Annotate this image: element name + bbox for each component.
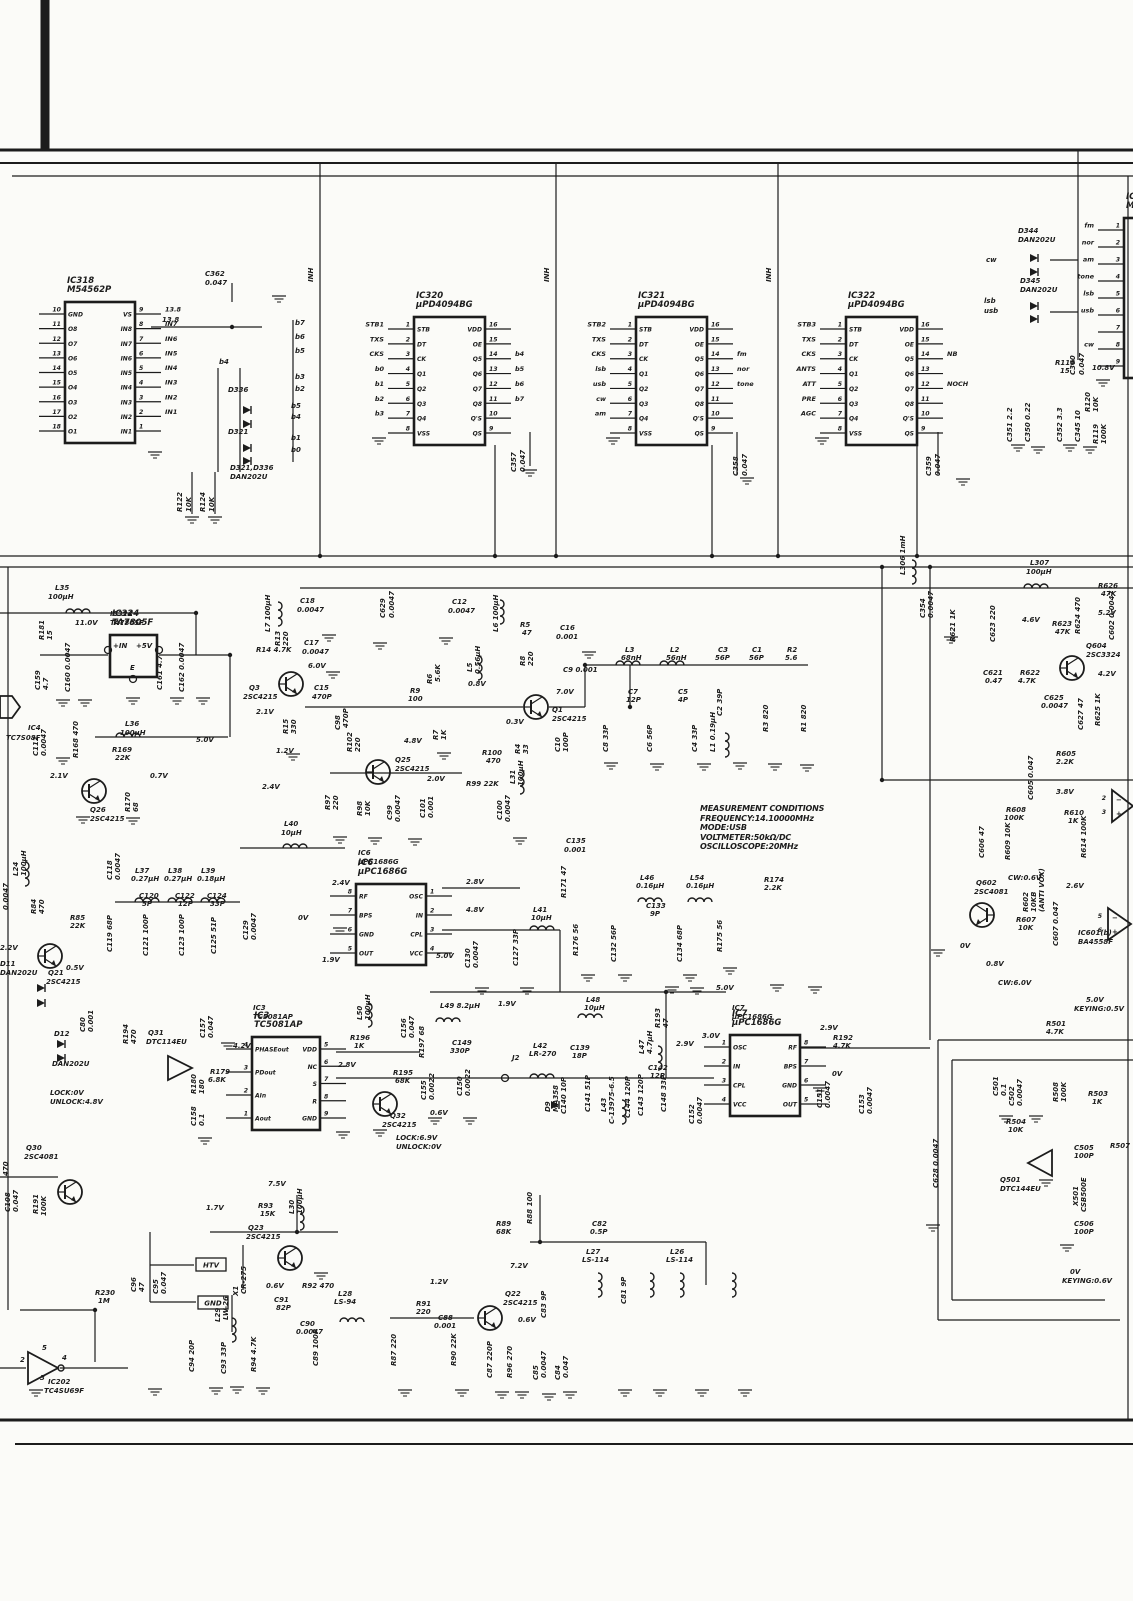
component-label: C143 120P <box>637 1073 645 1116</box>
inductor-icon <box>680 1273 684 1297</box>
component-label: 0.7V <box>150 772 168 780</box>
component-label: D11 <box>0 960 16 968</box>
component-label: 11 <box>921 396 930 403</box>
junction-dot <box>880 778 884 782</box>
component-label: lsb <box>1083 290 1094 298</box>
component-label: 16 <box>52 394 61 401</box>
component-label: C505 <box>1074 1144 1094 1152</box>
component-label: R503 <box>1088 1090 1108 1098</box>
component-label: 13 <box>489 366 498 373</box>
component-label: R5 <box>520 621 530 629</box>
component-label: 0.047 <box>519 450 527 472</box>
component-label: L48 <box>586 996 600 1004</box>
component-label: 4.7K <box>833 1042 851 1050</box>
component-label: C152 <box>688 1104 696 1124</box>
component-label: 1.9V <box>498 1000 516 1008</box>
component-label: CKS <box>802 350 817 358</box>
component-label: 1K <box>354 1042 365 1050</box>
component-label: C112 <box>32 736 40 756</box>
component-label: 0.0047 <box>250 913 258 940</box>
component-label: 4 <box>139 380 143 387</box>
component-label: 2 <box>430 908 434 915</box>
component-label: 0.1 <box>198 1113 206 1126</box>
component-label: b1 <box>291 434 301 442</box>
component-label: 0.047 <box>205 279 227 287</box>
component-label: 13 <box>711 366 720 373</box>
component-label: 56P <box>715 654 731 662</box>
component-label: Aout <box>254 1116 272 1123</box>
component-label: 4.2V <box>233 1042 251 1050</box>
component-label: C621 <box>983 669 1003 677</box>
component-label: GND <box>204 1300 222 1308</box>
component-label: R170 <box>124 792 132 812</box>
component-label: IN <box>733 1064 740 1071</box>
component-label: BA4558F <box>1078 938 1113 946</box>
note-line: FREQUENCY:14.10000MHz <box>700 814 824 824</box>
component-label: 9P <box>650 910 661 918</box>
component-label: 3 <box>139 394 143 401</box>
component-label: 16 <box>921 322 930 329</box>
component-label: C94 20P <box>188 1339 196 1372</box>
component-label: C625 <box>1044 694 1064 702</box>
component-label: IN5 <box>165 349 178 357</box>
component-label: C358 <box>732 456 740 476</box>
component-label: b7 <box>295 319 305 327</box>
junction-dot <box>915 554 919 558</box>
component-label: 330P <box>450 1047 471 1055</box>
component-label: DTC144EU <box>1000 1185 1041 1193</box>
component-label: C5 <box>678 688 688 696</box>
component-label: R90 22K <box>450 1333 458 1366</box>
component-label: µPD4094BG <box>637 300 695 310</box>
component-label: C159 <box>34 670 42 690</box>
component-label: R176 56 <box>572 924 580 956</box>
component-label: 5P <box>142 900 153 908</box>
component-label: 0.001 <box>87 1010 95 1032</box>
component-label: 100µH <box>296 1188 304 1214</box>
component-label: 47 <box>522 629 532 637</box>
component-label: C123 100P <box>178 913 186 956</box>
component-label: VDD <box>689 327 704 334</box>
component-label: R602 <box>1022 892 1030 912</box>
component-label: 6.8K <box>208 1076 226 1084</box>
component-label: R <box>312 1098 317 1105</box>
component-label: VSS <box>639 431 652 438</box>
component-label: 0.0047 <box>297 606 324 614</box>
component-label: C130 <box>464 948 472 968</box>
component-label: C91 <box>274 1296 289 1304</box>
component-label: 5 <box>1098 913 1102 920</box>
component-label: 0.0022 <box>428 1073 436 1100</box>
component-label: R92 470 <box>302 1282 334 1290</box>
junction-dot <box>554 554 558 558</box>
component-label: R120 <box>1084 392 1092 412</box>
ic-IC321-outline <box>636 317 707 445</box>
component-label: C99 <box>386 805 394 820</box>
component-label: Q4 <box>417 416 426 423</box>
component-label: 2 <box>244 1088 248 1095</box>
component-label: 7 <box>406 411 411 418</box>
component-label: C133 <box>646 902 666 910</box>
component-label: 5.0V <box>1086 996 1104 1004</box>
component-label: C158 <box>190 1106 198 1126</box>
component-label: 100µH <box>1026 568 1052 576</box>
component-label: Q6 <box>905 371 914 378</box>
component-label: R624 470 <box>1074 597 1082 634</box>
component-label: 0.0047 <box>114 853 122 880</box>
component-label: µPC1686G <box>357 858 399 866</box>
component-label: 2SC3324 <box>1086 651 1121 659</box>
component-label: C84 <box>554 1365 562 1380</box>
component-label: 14 <box>489 351 498 358</box>
component-label: OE <box>695 341 705 348</box>
note-line: MEASUREMENT CONDITIONS <box>700 804 824 814</box>
component-label: R2 <box>787 646 797 654</box>
component-label: R9 <box>410 687 420 695</box>
component-label: R625 1K <box>1094 693 1102 726</box>
component-label: Q23 <box>248 1224 264 1232</box>
component-label: NC <box>308 1064 318 1071</box>
component-label: VCC <box>733 1102 747 1109</box>
junction-dot <box>295 1230 299 1234</box>
component-label: 22K <box>115 754 131 762</box>
component-label: 5.6K <box>434 664 442 682</box>
component-label: 8 <box>324 1093 329 1100</box>
component-label: 47 <box>138 1282 146 1292</box>
component-label: R179 <box>210 1068 230 1076</box>
component-label: 2.0V <box>427 775 445 783</box>
component-label: 2SC4215 <box>90 815 125 823</box>
component-label: C149 <box>452 1039 472 1047</box>
component-label: 5.0V <box>436 952 454 960</box>
component-label: R87 220 <box>390 1334 398 1366</box>
component-label: C354 <box>919 598 927 618</box>
component-label: D345 <box>1020 277 1041 285</box>
component-label: L29 <box>214 1308 222 1322</box>
component-label: C161 4.7 <box>156 655 164 690</box>
IC4-symbol <box>0 696 20 718</box>
component-label: Q'S <box>693 416 704 423</box>
component-label: C151 <box>816 1088 824 1108</box>
component-label: 14 <box>711 351 720 358</box>
junction-dot <box>880 565 884 569</box>
component-label: D9 <box>544 1101 552 1112</box>
component-label: Q31 <box>148 1029 164 1037</box>
component-label: C10 <box>554 737 562 752</box>
component-label: C9 0.001 <box>563 666 598 674</box>
component-label: 2.4V <box>262 783 280 791</box>
component-label: R504 <box>1006 1118 1026 1126</box>
component-label: L39 <box>201 867 215 875</box>
component-label: C124 <box>207 892 227 900</box>
component-label: L36 <box>125 720 139 728</box>
component-label: MA358 <box>552 1085 560 1112</box>
component-label: Q3 <box>417 401 426 408</box>
component-label: R88 100 <box>526 1192 534 1224</box>
component-label: RF <box>359 894 369 901</box>
component-label: R608 <box>1006 806 1026 814</box>
component-label: 0V <box>832 1070 843 1078</box>
component-label: 47K <box>1055 628 1071 636</box>
diode-icon <box>1030 268 1038 276</box>
component-label: 6 <box>1116 308 1121 315</box>
component-label: R124 <box>199 492 207 512</box>
component-label: QS <box>695 431 704 438</box>
component-label: 1 <box>430 889 434 896</box>
component-label: IN6 <box>165 335 178 343</box>
component-label: RF <box>788 1045 798 1052</box>
component-label: Q21 <box>48 969 64 977</box>
component-label: VDD <box>899 327 914 334</box>
component-label: 8 <box>804 1040 809 1047</box>
component-label: R507 <box>1110 1142 1130 1150</box>
component-label: 2SC4215 <box>552 715 587 723</box>
component-label: PDout <box>255 1070 277 1077</box>
ic-IC322-outline <box>846 317 917 445</box>
component-label: 1 <box>139 424 143 431</box>
component-label: Q7 <box>473 386 483 393</box>
schematic-svg: IC318M54562P10GND11O812O713O614O515O416O… <box>0 0 1133 1601</box>
component-label: 0.0047 <box>696 1097 704 1124</box>
transistor-lead <box>373 762 384 769</box>
component-label: IN7 <box>121 341 133 348</box>
component-label: C607 0.047 <box>1052 902 1060 946</box>
component-label: M54562P <box>67 285 112 295</box>
component-label: L38 <box>168 867 182 875</box>
component-label: usb <box>593 380 606 388</box>
component-label: b7 <box>515 395 525 403</box>
component-label: 4.8V <box>466 906 484 914</box>
component-label: C606 47 <box>978 826 986 858</box>
transistor-lead <box>285 1248 296 1255</box>
component-label: IC3 <box>253 1004 266 1012</box>
component-label: 2.2K <box>1056 758 1074 766</box>
component-label: CK <box>639 356 649 363</box>
component-label: TC4SU69F <box>44 1387 84 1395</box>
component-label: fm <box>1084 222 1094 230</box>
component-label: 10 <box>52 307 61 314</box>
component-label: R174 <box>764 876 784 884</box>
component-label: 4P <box>678 696 689 704</box>
component-label: L24 <box>12 862 20 876</box>
component-label: Q4 <box>849 416 858 423</box>
component-label: C125 51P <box>210 916 218 954</box>
component-label: 2.2K <box>764 884 782 892</box>
transistor-lead <box>89 781 100 788</box>
component-label: L26 <box>670 1248 684 1256</box>
component-label: Q7 <box>905 386 915 393</box>
component-label: 0.047 <box>741 454 749 476</box>
component-label: R118 <box>1055 359 1075 367</box>
component-label: R180 <box>190 1074 198 1094</box>
component-label: b6 <box>295 333 305 341</box>
component-label: Q5 <box>905 356 914 363</box>
component-label: LS-114 <box>582 1256 609 1264</box>
component-label: X501 <box>1072 1186 1080 1207</box>
component-label: 0.0047 <box>2 883 10 910</box>
component-label: 7.2V <box>510 1262 528 1270</box>
junction-dot <box>228 653 232 657</box>
component-label: 220 <box>354 737 362 752</box>
component-label: 10K <box>1092 396 1100 412</box>
component-label: J2 <box>510 1054 520 1062</box>
component-label: Q3 <box>249 684 260 692</box>
component-label: Q25 <box>395 756 411 764</box>
diode-icon <box>243 444 251 452</box>
component-label: Q'S <box>471 416 482 423</box>
component-label: Q'S <box>903 416 914 423</box>
component-label: 10µH <box>281 829 302 837</box>
component-label: 3 <box>406 351 410 358</box>
component-label: am <box>1083 256 1094 264</box>
component-label: 4 <box>722 1097 726 1104</box>
component-label: 2 <box>139 409 143 416</box>
component-label: O5 <box>68 370 77 377</box>
component-label: 10K <box>208 496 216 512</box>
component-label: lsb <box>595 365 606 373</box>
component-label: LS-94 <box>334 1298 356 1306</box>
component-label: 220 <box>416 1308 431 1316</box>
component-label: C627 47 <box>1077 698 1085 730</box>
component-label: 0.5V <box>66 964 84 972</box>
component-label: R609 10K <box>1004 822 1012 860</box>
component-label: CK <box>417 356 427 363</box>
transistor-lead <box>1067 658 1078 665</box>
component-label: 100µH <box>48 593 74 601</box>
component-label: R168 470 <box>72 721 80 758</box>
component-label: IN3 <box>121 399 132 406</box>
component-label: DAN202U <box>1018 236 1056 244</box>
component-label: 180 <box>198 1079 206 1094</box>
component-label: D344 <box>1018 227 1039 235</box>
component-label: 4.7K <box>1018 677 1036 685</box>
component-label: C127 33P <box>512 928 520 966</box>
component-label: 2SC4081 <box>24 1153 59 1161</box>
component-label: DAN202U <box>0 969 38 977</box>
component-label: R91 <box>416 1300 431 1308</box>
component-label: C6 56P <box>646 724 654 752</box>
component-label: 0.0047 <box>472 941 480 968</box>
component-label: b5 <box>295 347 305 355</box>
component-label: IC202 <box>48 1378 70 1386</box>
component-label: R171 47 <box>560 866 568 898</box>
component-label: C501 <box>992 1076 1000 1096</box>
component-label: ATT <box>802 380 817 388</box>
component-label: 0.3V <box>506 718 524 726</box>
component-label: 0.0047 <box>1041 702 1068 710</box>
component-label: C89 100P <box>312 1328 320 1366</box>
component-label: 0V <box>960 942 971 950</box>
component-label: X1 <box>232 1286 240 1297</box>
component-label: Q604 <box>1086 642 1107 650</box>
component-label: 7 <box>804 1059 809 1066</box>
component-label: C16 <box>560 624 575 632</box>
component-label: Q2 <box>417 386 426 393</box>
component-label: 8 <box>406 426 411 433</box>
component-label: 4 <box>628 366 632 373</box>
component-label: − <box>1116 796 1122 804</box>
component-label: R230 <box>95 1289 115 1297</box>
component-label: TXS <box>370 335 384 343</box>
component-label: R195 <box>393 1069 413 1077</box>
component-label: Q7 <box>695 386 705 393</box>
component-label: C350 0.22 <box>1024 402 1032 442</box>
component-label: 8 <box>838 426 843 433</box>
component-label: OE <box>473 341 483 348</box>
component-label: 0.001 <box>564 846 586 854</box>
component-label: 2.1V <box>50 772 68 780</box>
component-label: 7 <box>838 411 843 418</box>
component-label: 2 <box>838 336 842 343</box>
component-label: +5V <box>136 642 153 650</box>
component-label: OSC <box>733 1045 747 1052</box>
component-label: Q2 <box>639 386 648 393</box>
component-label: 12 <box>921 381 930 388</box>
junction-dot <box>710 554 714 558</box>
diode-icon <box>57 1040 65 1048</box>
transistor-lead <box>286 674 297 681</box>
component-label: L306 1mH <box>899 535 907 575</box>
component-label: fm <box>737 350 747 358</box>
component-label: DAN202U <box>230 473 268 481</box>
component-label: 13 <box>52 350 61 357</box>
component-label: 2 <box>1102 795 1106 802</box>
component-label: R97 <box>324 795 332 810</box>
component-label: DT <box>639 341 649 348</box>
component-label: R13 <box>274 631 282 646</box>
component-label: 15 <box>1060 367 1070 375</box>
component-label: 6 <box>324 1059 329 1066</box>
component-label: L28 <box>338 1290 352 1298</box>
component-label: 470 <box>38 899 46 914</box>
component-label: C502 <box>1008 1086 1016 1106</box>
component-label: IN2 <box>165 393 178 401</box>
component-label: 15 <box>52 380 61 387</box>
component-label: 0.16µH <box>636 882 664 890</box>
component-label: C157 <box>199 1018 207 1038</box>
component-label: 1.7V <box>206 1204 224 1212</box>
component-label: cw <box>596 395 607 403</box>
component-label: L46 <box>640 874 654 882</box>
component-label: 4 <box>406 366 410 373</box>
component-label: 100 <box>408 695 423 703</box>
component-label: 1 <box>244 1111 248 1118</box>
component-label: 0V <box>1070 1268 1081 1276</box>
component-label: 0.0047 <box>448 607 475 615</box>
component-label: 9 <box>711 426 716 433</box>
component-label: 4.2V <box>1098 670 1116 678</box>
component-label: VDD <box>467 327 482 334</box>
component-label: 3 <box>40 1374 45 1382</box>
component-label: Q8 <box>695 401 704 408</box>
component-label: tone <box>737 380 754 388</box>
component-label: VCC <box>410 951 424 958</box>
component-label: IN5 <box>121 370 132 377</box>
component-label: L47 <box>638 1040 646 1054</box>
component-label: R607 <box>1016 916 1036 924</box>
component-label: 68K <box>395 1077 411 1085</box>
component-label: R102 <box>346 732 354 752</box>
component-label: 8 <box>139 321 144 328</box>
component-label: LOCK:6.9V <box>396 1134 438 1142</box>
component-label: 11 <box>711 396 720 403</box>
component-label: 4.8V <box>404 737 422 745</box>
component-label: 13.8 <box>162 316 179 324</box>
component-label: O7 <box>68 341 78 348</box>
component-label: 5 <box>1116 291 1120 298</box>
component-label: 6 <box>838 396 843 403</box>
component-label: 1.9V <box>322 956 340 964</box>
